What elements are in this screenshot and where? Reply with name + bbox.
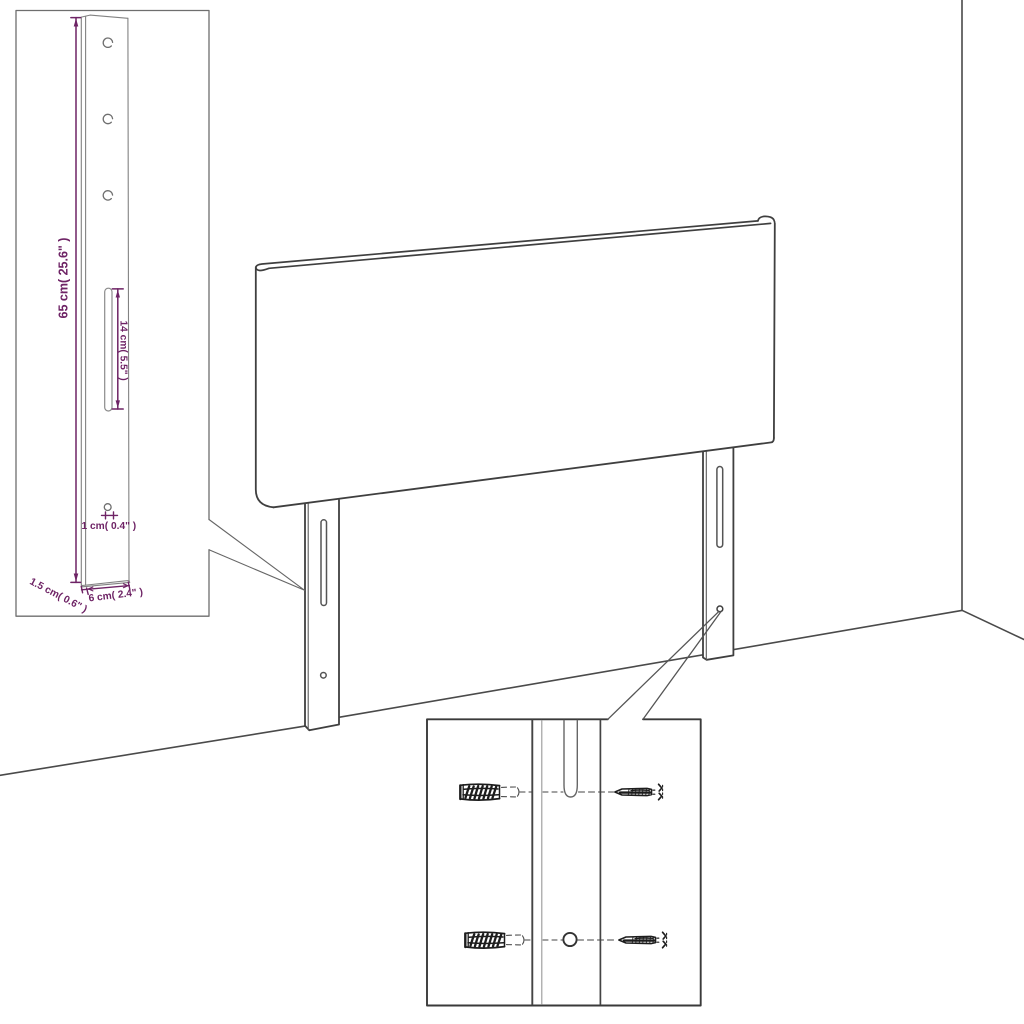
svg-text:14 cm( 5.5" ): 14 cm( 5.5" ) <box>117 321 128 381</box>
svg-text:1 cm( 0.4" ): 1 cm( 0.4" ) <box>82 521 137 532</box>
svg-text:65 cm( 25.6" ): 65 cm( 25.6" ) <box>57 238 71 319</box>
svg-text:6 cm( 2.4" ): 6 cm( 2.4" ) <box>88 587 144 605</box>
